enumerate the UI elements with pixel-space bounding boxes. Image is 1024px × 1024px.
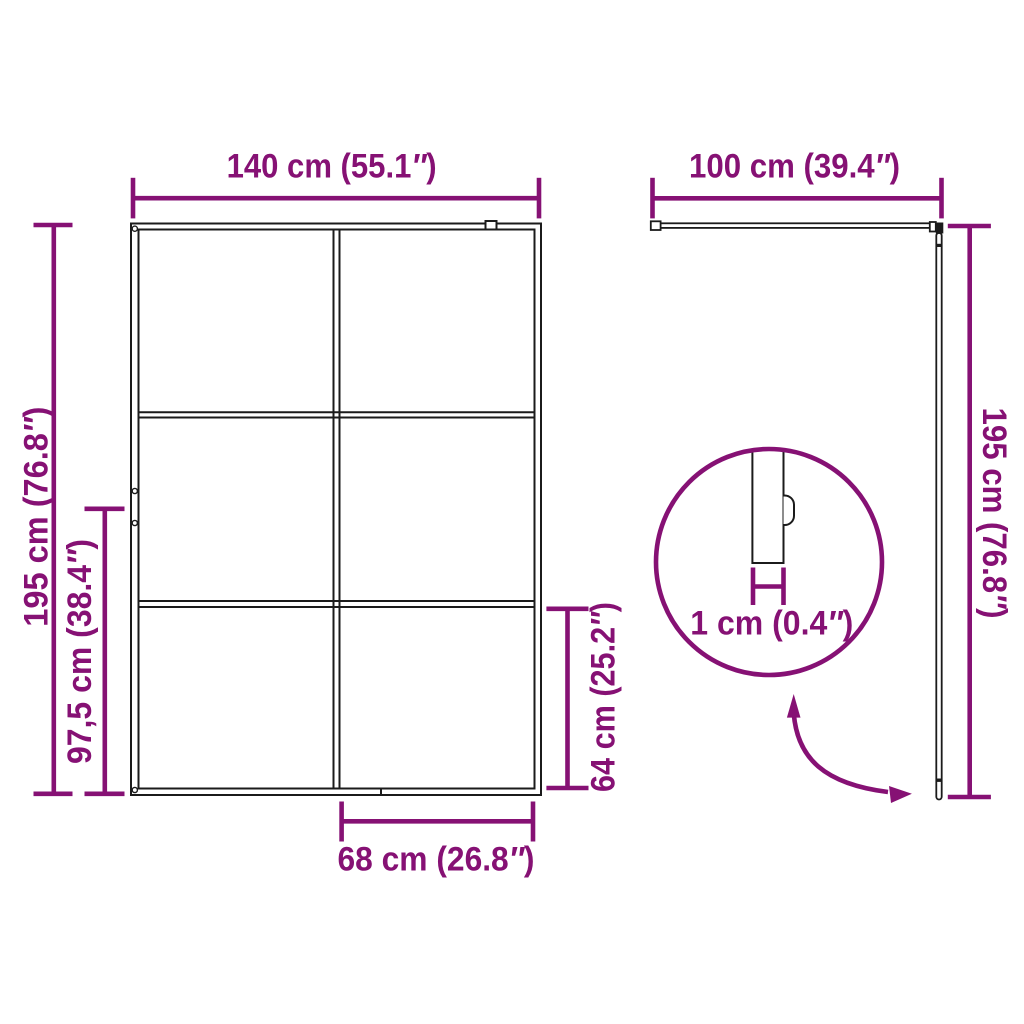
svg-text:100 cm (39.4″): 100 cm (39.4″) (689, 148, 900, 186)
svg-text:195 cm (76.8″): 195 cm (76.8″) (975, 408, 1013, 619)
svg-text:64 cm (25.2″): 64 cm (25.2″) (585, 602, 623, 792)
svg-text:1 cm (0.4″): 1 cm (0.4″) (690, 604, 853, 642)
svg-text:68 cm (26.8″): 68 cm (26.8″) (338, 840, 535, 878)
svg-text:140 cm (55.1″): 140 cm (55.1″) (227, 148, 437, 186)
svg-text:97,5 cm (38.4″): 97,5 cm (38.4″) (61, 539, 99, 764)
svg-text:195 cm (76.8″): 195 cm (76.8″) (18, 407, 56, 627)
